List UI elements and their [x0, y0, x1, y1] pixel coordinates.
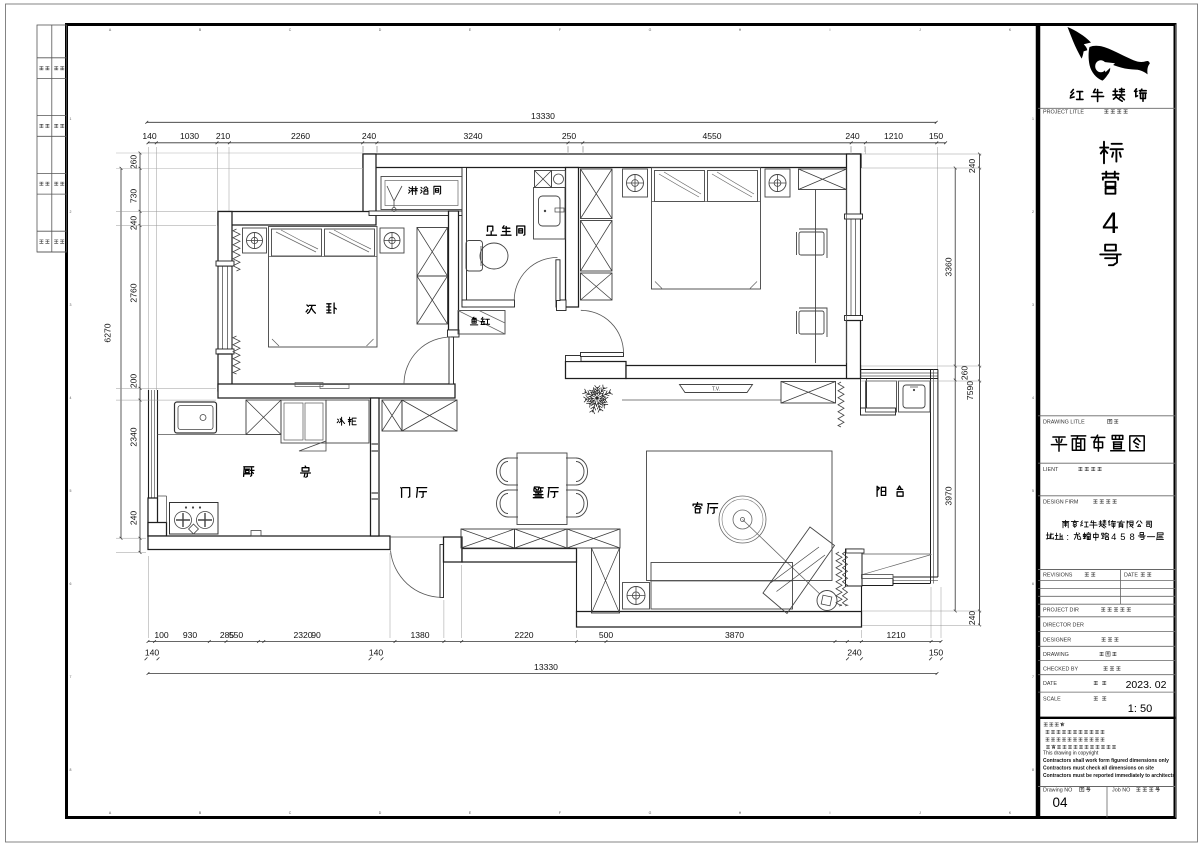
- svg-text:DATE: DATE: [1124, 573, 1138, 579]
- svg-text:3240: 3240: [463, 131, 482, 141]
- svg-text:8: 8: [70, 768, 72, 772]
- svg-text:G: G: [649, 28, 652, 32]
- svg-text:210: 210: [216, 131, 231, 141]
- svg-text:1: 50: 1: 50: [1128, 703, 1152, 715]
- svg-text:Contractors shall work form fi: Contractors shall work form figured dime…: [1043, 758, 1169, 764]
- svg-text:1: 1: [1032, 117, 1034, 121]
- svg-text:SCALE: SCALE: [1043, 697, 1061, 703]
- svg-text:5: 5: [1120, 531, 1125, 542]
- svg-text:3970: 3970: [944, 486, 954, 505]
- svg-text:I: I: [830, 811, 831, 815]
- svg-text:13330: 13330: [534, 662, 558, 672]
- svg-text:PROJECT DIR: PROJECT DIR: [1043, 608, 1079, 614]
- svg-text:260: 260: [129, 155, 139, 170]
- svg-text:Drawing NO: Drawing NO: [1043, 788, 1072, 794]
- svg-text:140: 140: [145, 648, 160, 658]
- svg-text:3: 3: [1032, 303, 1034, 307]
- svg-text:240: 240: [129, 216, 139, 231]
- svg-text:250: 250: [562, 131, 577, 141]
- svg-text:90: 90: [311, 630, 321, 640]
- svg-text:2220: 2220: [514, 630, 533, 640]
- svg-text:1210: 1210: [884, 131, 903, 141]
- svg-text:G: G: [649, 811, 652, 815]
- svg-text:1380: 1380: [410, 630, 429, 640]
- svg-text:I: I: [830, 28, 831, 32]
- svg-text:6: 6: [70, 582, 72, 586]
- svg-text:13330: 13330: [531, 111, 555, 121]
- svg-text:6: 6: [1032, 582, 1034, 586]
- svg-text:550: 550: [229, 630, 244, 640]
- svg-text:Job NO: Job NO: [1112, 788, 1130, 794]
- svg-text:3: 3: [70, 303, 72, 307]
- svg-text:140: 140: [369, 648, 384, 658]
- svg-text:1030: 1030: [180, 131, 199, 141]
- svg-text:500: 500: [599, 630, 614, 640]
- svg-text:150: 150: [929, 131, 944, 141]
- svg-text:2760: 2760: [129, 283, 139, 302]
- svg-text:1: 1: [70, 117, 72, 121]
- svg-text:150: 150: [929, 648, 944, 658]
- svg-text:4: 4: [70, 396, 72, 400]
- svg-text:PROJECT LITLE: PROJECT LITLE: [1043, 110, 1084, 116]
- svg-text:7590: 7590: [965, 381, 975, 400]
- svg-text:4550: 4550: [702, 131, 721, 141]
- svg-text:5: 5: [1032, 489, 1034, 493]
- svg-text:DRAWING LITLE: DRAWING LITLE: [1043, 420, 1085, 426]
- svg-text:100: 100: [154, 630, 169, 640]
- svg-text:730: 730: [129, 189, 139, 204]
- svg-text:6270: 6270: [103, 323, 113, 342]
- svg-text:240: 240: [967, 159, 977, 174]
- svg-text:This drawing in copyright: This drawing in copyright: [1043, 751, 1099, 757]
- svg-text:240: 240: [845, 131, 860, 141]
- svg-text:4: 4: [1111, 531, 1116, 542]
- svg-text:240: 240: [129, 511, 139, 526]
- svg-text:4: 4: [1032, 396, 1034, 400]
- svg-text:240: 240: [362, 131, 377, 141]
- svg-text:930: 930: [183, 630, 198, 640]
- svg-text:J: J: [919, 811, 921, 815]
- svg-text:LIENT: LIENT: [1043, 467, 1059, 473]
- svg-text:240: 240: [967, 611, 977, 626]
- svg-text:DESIGN FIRM: DESIGN FIRM: [1043, 500, 1079, 506]
- svg-text:260: 260: [960, 366, 970, 381]
- svg-text:DRAWING: DRAWING: [1043, 652, 1069, 658]
- svg-text:2260: 2260: [291, 131, 310, 141]
- svg-text:2320: 2320: [293, 630, 312, 640]
- svg-text:3870: 3870: [725, 630, 744, 640]
- svg-text:CHECKED BY: CHECKED BY: [1043, 667, 1078, 673]
- svg-text::: :: [1066, 531, 1069, 542]
- svg-text:4: 4: [1102, 207, 1119, 240]
- svg-text:7: 7: [1032, 675, 1034, 679]
- svg-text:REVISIONS: REVISIONS: [1043, 573, 1073, 579]
- svg-text:3360: 3360: [944, 257, 954, 276]
- svg-text:8: 8: [1032, 768, 1034, 772]
- svg-text:DATE: DATE: [1043, 681, 1057, 687]
- svg-text:240: 240: [847, 648, 862, 658]
- svg-text:F: F: [559, 811, 561, 815]
- svg-text:F: F: [559, 28, 561, 32]
- svg-text:T.V.: T.V.: [712, 387, 720, 393]
- svg-text:2: 2: [70, 210, 72, 214]
- svg-text:2023. 02: 2023. 02: [1126, 679, 1167, 691]
- svg-text:8: 8: [1129, 531, 1134, 542]
- svg-text:2340: 2340: [129, 427, 139, 446]
- svg-text:7: 7: [70, 675, 72, 679]
- svg-text:Contractors must check all dim: Contractors must check all dimensions on…: [1043, 766, 1154, 772]
- svg-text:5: 5: [70, 489, 72, 493]
- svg-text:2: 2: [1032, 210, 1034, 214]
- svg-text:200: 200: [129, 374, 139, 389]
- svg-text:DESIGNER: DESIGNER: [1043, 638, 1071, 644]
- svg-text:140: 140: [142, 131, 157, 141]
- svg-text:DIRECTOR DER: DIRECTOR DER: [1043, 623, 1084, 629]
- svg-text:04: 04: [1052, 795, 1068, 810]
- svg-text:J: J: [919, 28, 921, 32]
- svg-text:Contractors must be reported i: Contractors must be reported immediately…: [1043, 773, 1175, 779]
- svg-text:1210: 1210: [886, 630, 905, 640]
